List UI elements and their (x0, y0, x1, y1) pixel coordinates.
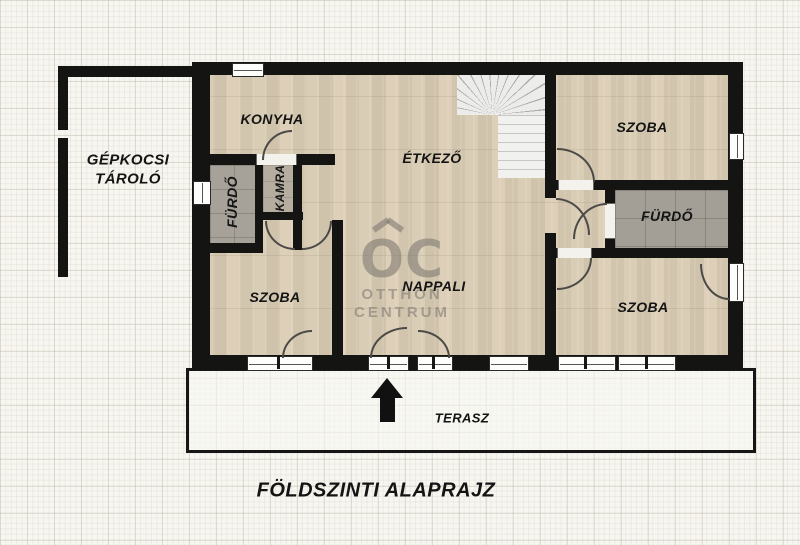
room-label-pantry: KAMRA (273, 165, 287, 212)
room-label-room-top-right: SZOBA (617, 119, 668, 135)
room-label-dining: ÉTKEZŐ (402, 150, 461, 166)
house-wall-top (192, 62, 743, 75)
wall-bath-pantry (255, 154, 263, 252)
garage-wall-top (58, 66, 195, 77)
room-label-living: NAPPALI (402, 278, 465, 294)
room-label-room-bottom-left: SZOBA (250, 289, 301, 305)
staircase-run (498, 115, 545, 178)
floor-plan: OC OTTHON CENTRUM (0, 0, 800, 545)
entrance-arrow-icon (380, 397, 395, 422)
window-mullion (584, 356, 587, 369)
door-opening-roomBR (557, 248, 592, 258)
garage-wall-left (58, 138, 68, 277)
wall-living-right-upper (545, 62, 556, 198)
wall-living-right-lower (545, 233, 556, 370)
window (489, 356, 529, 371)
room-label-room-bottom-right: SZOBA (618, 299, 669, 315)
room-label-bath-left: FÜRDŐ (224, 176, 240, 228)
watermark: OC OTTHON CENTRUM (350, 218, 454, 322)
room-label-kitchen: KONYHA (240, 111, 303, 127)
house-wall-left (192, 62, 210, 370)
house-wall-right (728, 62, 743, 368)
window (193, 181, 211, 205)
wall-room-living (332, 220, 343, 370)
staircase-winder (457, 75, 545, 115)
window-mullion (645, 356, 648, 369)
watermark-line2: CENTRUM (350, 304, 454, 322)
window-door (729, 263, 744, 302)
room-label-terrace: TERASZ (435, 411, 489, 426)
room-label-garage: GÉPKOCSI TÁROLÓ (70, 151, 186, 189)
wall-pantry-bottom (255, 212, 303, 220)
room-label-bath-right: FÜRDŐ (641, 208, 693, 224)
window (232, 63, 264, 77)
wall-kitchen-bath (210, 154, 256, 165)
plan-title: FÖLDSZINTI ALAPRAJZ (257, 480, 496, 503)
garage-wall-left (58, 66, 68, 130)
window-mullion (277, 356, 280, 369)
window (729, 133, 744, 160)
window (558, 356, 616, 371)
window (247, 356, 313, 371)
window (417, 356, 453, 371)
entrance-arrow-icon (371, 378, 403, 398)
